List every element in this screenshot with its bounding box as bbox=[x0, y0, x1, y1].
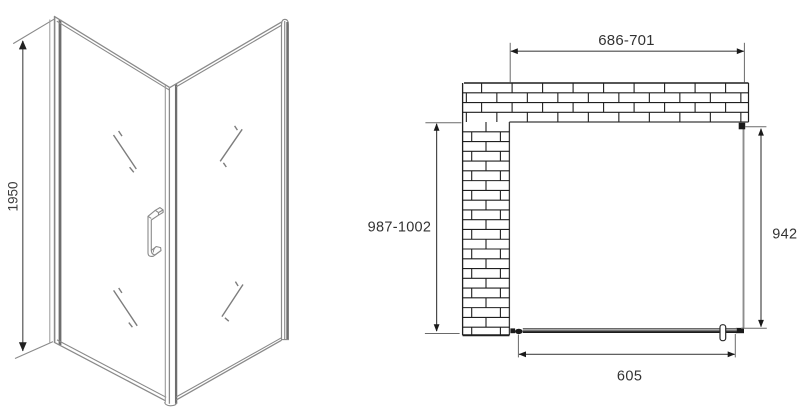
svg-text:987-1002: 987-1002 bbox=[368, 219, 432, 235]
svg-text:605: 605 bbox=[617, 368, 642, 384]
svg-text:1950: 1950 bbox=[6, 181, 21, 211]
svg-text:686-701: 686-701 bbox=[598, 32, 654, 49]
svg-text:942: 942 bbox=[772, 227, 797, 243]
